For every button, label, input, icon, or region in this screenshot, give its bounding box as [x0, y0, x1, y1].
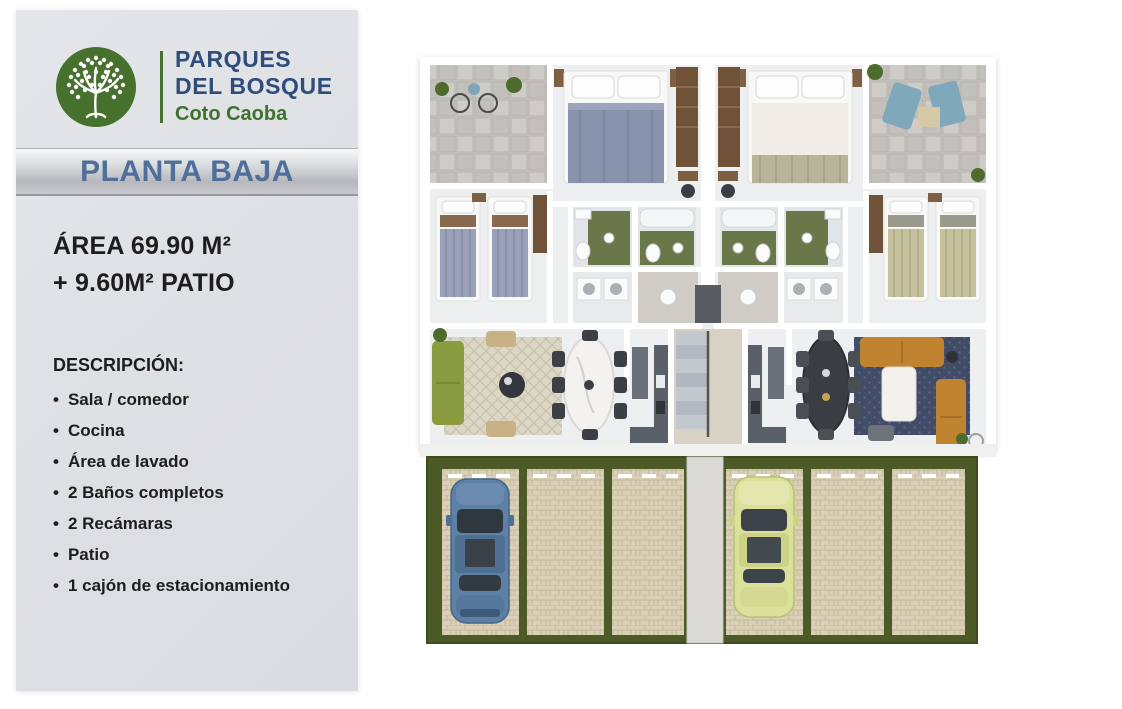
blue-car: [446, 479, 514, 623]
list-item: 2 Recámaras: [53, 508, 290, 539]
list-item: 1 cajón de estacionamiento: [53, 570, 290, 601]
list-item: Patio: [53, 539, 290, 570]
brand-subtitle: Coto Caoba: [175, 102, 333, 127]
description-list: Sala / comedor Cocina Área de lavado 2 B…: [53, 384, 290, 601]
area-line2: + 9.60M² PATIO: [53, 265, 235, 302]
flyer-page: PARQUES DEL BOSQUE Coto Caoba PLANTA BAJ…: [0, 0, 1122, 709]
description-label: DESCRIPCIÓN:: [53, 355, 184, 376]
list-item: 2 Baños completos: [53, 477, 290, 508]
area-info: ÁREA 69.90 M² + 9.60M² PATIO: [53, 228, 235, 302]
logo-divider: [160, 51, 163, 123]
bedroom-twin-left: [436, 193, 547, 301]
parking-area: [420, 444, 996, 643]
brand-header: PARQUES DEL BOSQUE Coto Caoba: [56, 46, 333, 127]
list-item: Área de lavado: [53, 446, 290, 477]
list-item: Cocina: [53, 415, 290, 446]
tree-logo-icon: [56, 47, 136, 127]
yellow-green-car: [729, 477, 799, 617]
floorplan-rendering: [402, 45, 1010, 657]
living-dining-left: [432, 328, 627, 440]
plan-title-banner: PLANTA BAJA: [16, 148, 358, 196]
living-dining-right: [796, 330, 983, 457]
brand-name-line2: DEL BOSQUE: [175, 73, 333, 100]
plan-title: PLANTA BAJA: [80, 155, 294, 189]
sidewalk: [420, 444, 996, 457]
walkway: [687, 457, 723, 643]
bedroom-twin-right: [869, 193, 980, 301]
patio-left: [430, 65, 547, 183]
brand-name-line1: PARQUES: [175, 46, 333, 73]
area-line1: ÁREA 69.90 M²: [53, 228, 235, 265]
info-card: PARQUES DEL BOSQUE Coto Caoba PLANTA BAJ…: [16, 10, 358, 691]
building: [420, 57, 996, 457]
list-item: Sala / comedor: [53, 384, 290, 415]
